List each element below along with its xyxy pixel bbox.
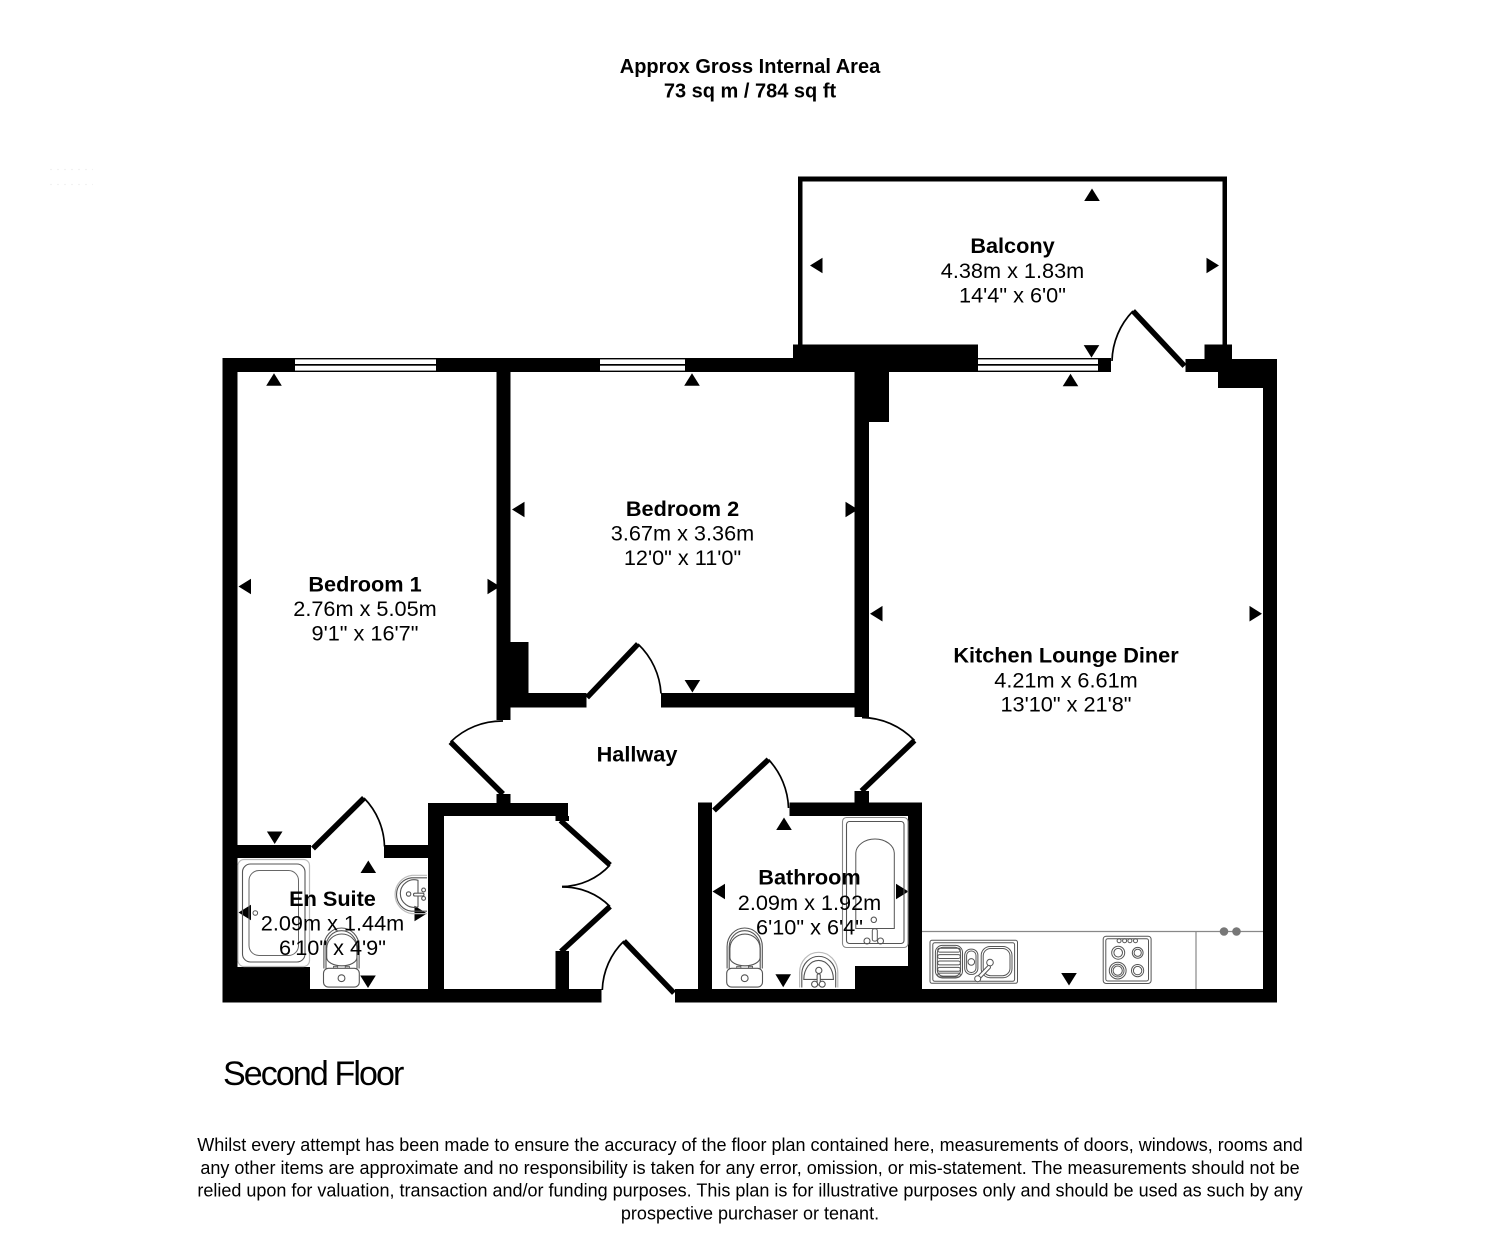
svg-text:2.76m x 5.05m: 2.76m x 5.05m xyxy=(293,596,436,621)
svg-text:9'1" x 16'7": 9'1" x 16'7" xyxy=(312,621,419,646)
svg-text:relied upon for valuation, tra: relied upon for valuation, transaction a… xyxy=(197,1181,1302,1201)
svg-text:6'10" x 4'9": 6'10" x 4'9" xyxy=(279,935,386,960)
svg-text:2.09m x 1.92m: 2.09m x 1.92m xyxy=(738,890,881,915)
svg-text:3.67m x 3.36m: 3.67m x 3.36m xyxy=(611,521,754,546)
svg-text:Balcony: Balcony xyxy=(970,233,1054,258)
svg-text:4.21m x 6.61m: 4.21m x 6.61m xyxy=(994,668,1137,693)
svg-text:13'10" x 21'8": 13'10" x 21'8" xyxy=(1000,692,1131,717)
svg-text:6'10" x 6'4": 6'10" x 6'4" xyxy=(756,915,863,940)
svg-text:Second Floor: Second Floor xyxy=(223,1055,404,1093)
svg-text:Approx Gross Internal Area: Approx Gross Internal Area xyxy=(620,56,881,78)
svg-text:Kitchen Lounge Diner: Kitchen Lounge Diner xyxy=(953,643,1179,668)
svg-text:Hallway: Hallway xyxy=(597,742,678,767)
svg-text:2.09m x 1.44m: 2.09m x 1.44m xyxy=(261,911,404,936)
svg-text:73 sq m / 784 sq ft: 73 sq m / 784 sq ft xyxy=(664,81,837,103)
svg-text:Bathroom: Bathroom xyxy=(758,865,860,890)
svg-text:Bedroom 2: Bedroom 2 xyxy=(626,496,739,521)
svg-text:12'0" x 11'0": 12'0" x 11'0" xyxy=(624,545,741,570)
svg-text:En Suite: En Suite xyxy=(289,886,376,911)
svg-text:Whilst every attempt has been: Whilst every attempt has been made to en… xyxy=(197,1135,1303,1155)
svg-text:any other items are approximat: any other items are approximate and no r… xyxy=(200,1158,1299,1178)
svg-text:prospective purchaser or tenan: prospective purchaser or tenant. xyxy=(621,1203,879,1223)
svg-text:4.38m x 1.83m: 4.38m x 1.83m xyxy=(941,258,1084,283)
svg-text:14'4" x 6'0": 14'4" x 6'0" xyxy=(959,282,1066,307)
svg-text:Bedroom 1: Bedroom 1 xyxy=(308,572,421,597)
